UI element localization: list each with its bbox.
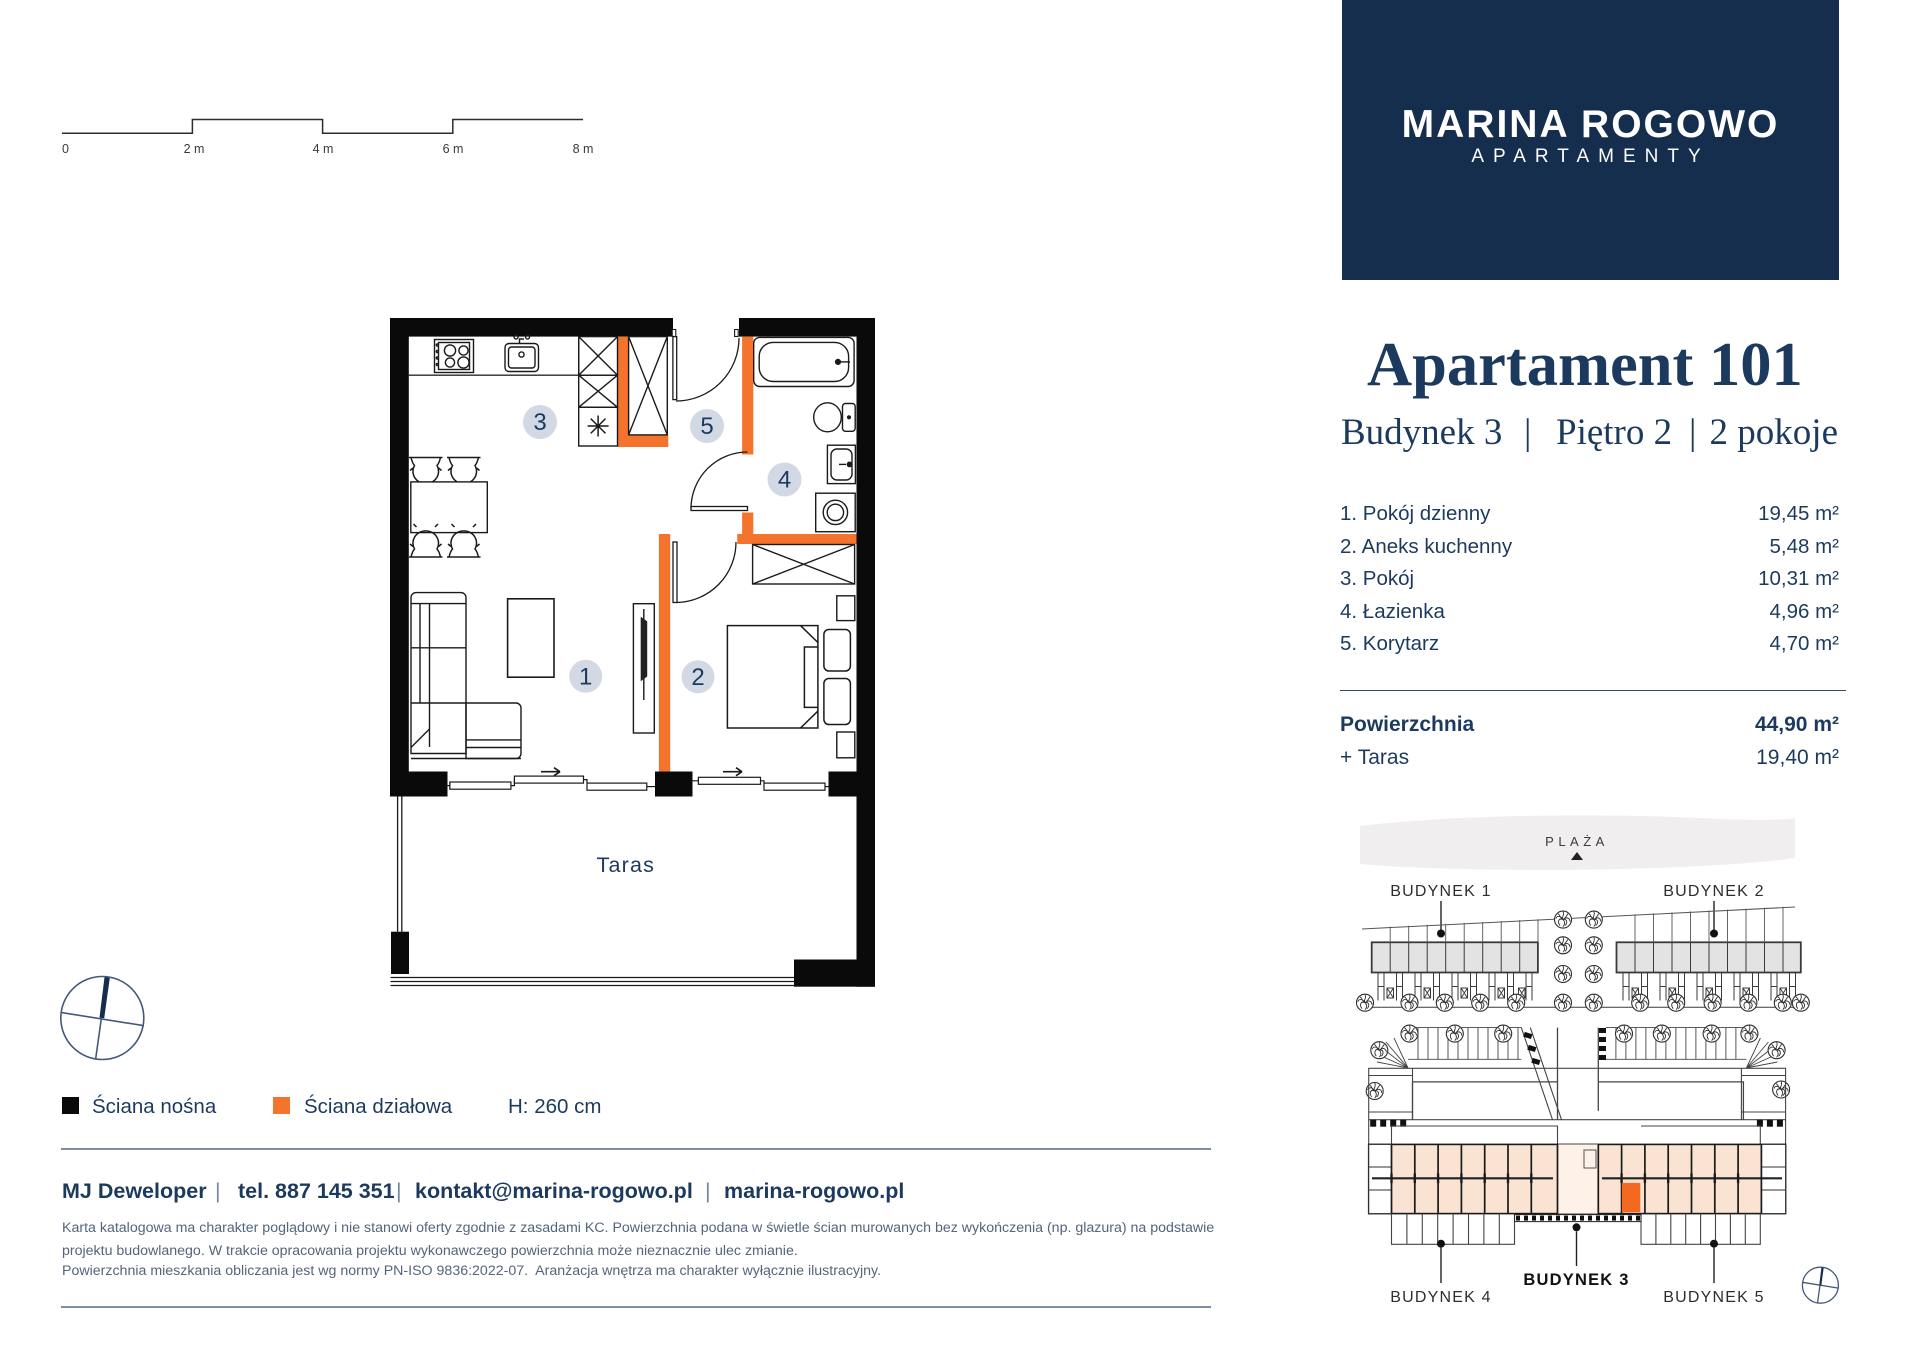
svg-text:BUDYNEK 2: BUDYNEK 2 — [1663, 883, 1765, 900]
svg-text:3: 3 — [533, 409, 546, 436]
svg-text:4: 4 — [778, 467, 791, 494]
svg-text:0: 0 — [62, 142, 69, 156]
svg-text:Taras: Taras — [597, 853, 656, 877]
svg-text:BUDYNEK 4: BUDYNEK 4 — [1390, 1289, 1492, 1306]
svg-text:6 m: 6 m — [443, 142, 464, 156]
svg-text:2: 2 — [691, 664, 704, 691]
svg-text:5: 5 — [700, 413, 713, 440]
svg-text:BUDYNEK 5: BUDYNEK 5 — [1663, 1289, 1765, 1306]
svg-text:BUDYNEK 1: BUDYNEK 1 — [1390, 883, 1492, 900]
svg-text:BUDYNEK 3: BUDYNEK 3 — [1523, 1271, 1629, 1289]
svg-text:PLAŻA: PLAŻA — [1545, 834, 1609, 849]
svg-text:1: 1 — [579, 663, 592, 690]
svg-text:4 m: 4 m — [313, 142, 334, 156]
svg-text:2 m: 2 m — [184, 142, 205, 156]
svg-text:8 m: 8 m — [573, 142, 594, 156]
